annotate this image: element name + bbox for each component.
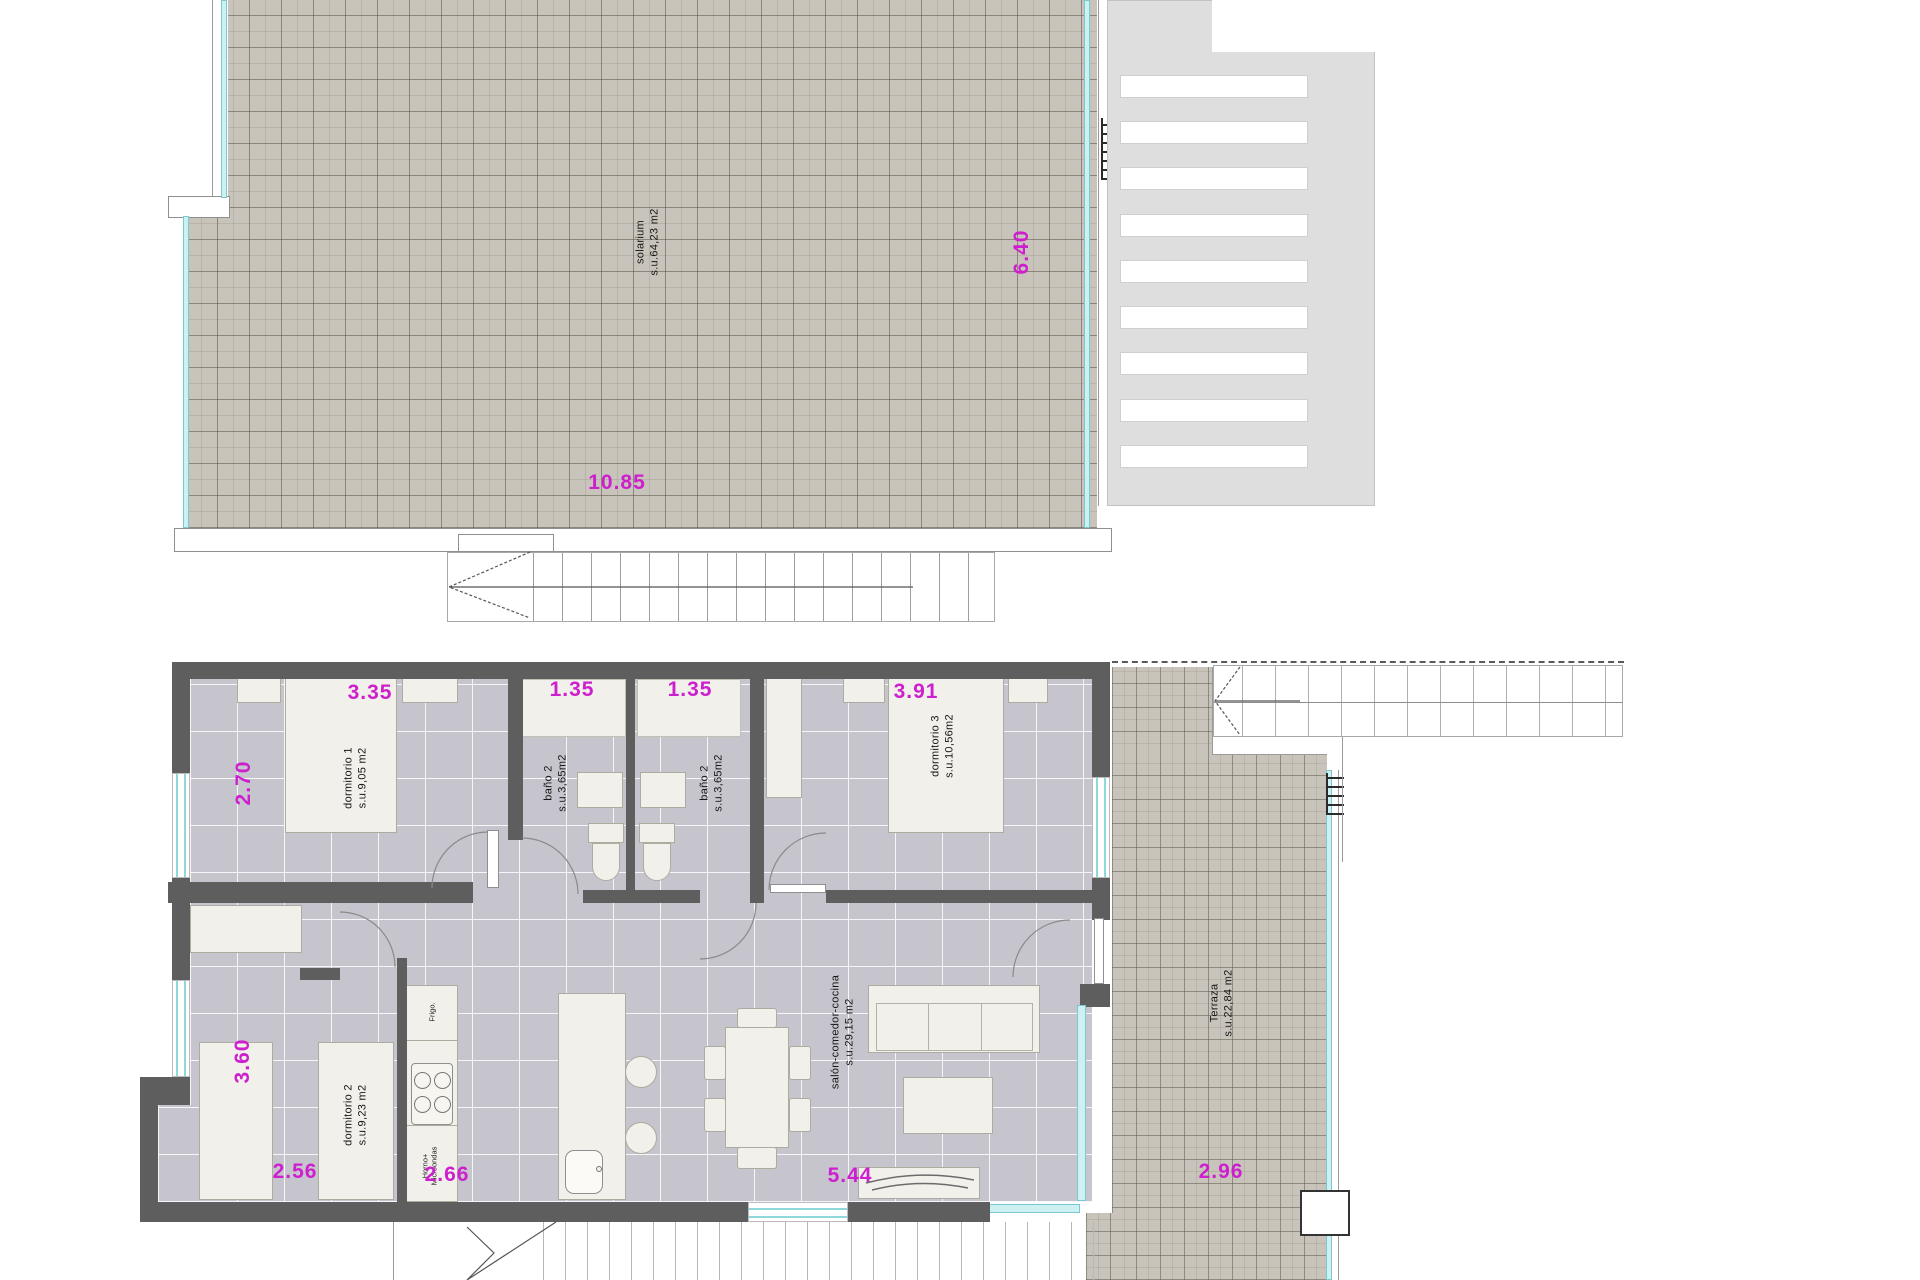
- toilet-bowl-banoB: [643, 843, 671, 881]
- wall-banoB-dorm3: [750, 662, 764, 903]
- room-label-salon: salón-comedor-cocina s.u.29,15 m2: [829, 975, 858, 1089]
- pergola-slat: [1120, 306, 1308, 329]
- upper-stairs-divider: [1214, 702, 1622, 703]
- toilet-tank-banoA: [588, 823, 624, 843]
- room-name: dormitorio 1: [342, 747, 356, 809]
- burner: [434, 1096, 451, 1113]
- terrace-pillar: [1300, 1190, 1350, 1236]
- room-area: s.u.3,65m2: [712, 754, 726, 811]
- wall-right-upper: [1092, 662, 1110, 777]
- room-area: s.u.22,84 m2: [1222, 969, 1236, 1036]
- glass-door-living-right: [1077, 1005, 1086, 1201]
- solarium-stair-landing: [458, 534, 554, 552]
- solarium-bottom-wall: [174, 528, 1112, 552]
- terrace-door-leaf: [1094, 918, 1104, 984]
- vanity-banoB: [640, 772, 686, 808]
- dim-banoA-top: 1.35: [550, 678, 595, 702]
- terrace-notch-edge: [1212, 754, 1327, 755]
- room-name: Terraza: [1208, 969, 1222, 1036]
- upper-stairs-treads: [1242, 666, 1622, 736]
- room-label-dormitorio2: dormitorio 2 s.u.9,23 m2: [342, 1084, 371, 1146]
- vanity-banoA: [577, 772, 623, 808]
- floor-plan-canvas: solarium s.u.64,23 m2 6.40 10.85 dormito…: [0, 0, 1920, 1280]
- entrance-steps: [543, 1222, 1110, 1280]
- dining-chair: [737, 1008, 777, 1028]
- wall-dorm1-banoA: [508, 662, 523, 840]
- room-area: s.u.10,56m2: [943, 714, 957, 778]
- solarium-top-left-notch: [140, 0, 228, 214]
- wall-left-upper: [172, 662, 190, 773]
- solarium-outer-line-right: [1098, 0, 1099, 506]
- burner: [414, 1096, 431, 1113]
- wall-bottom-right: [848, 1202, 990, 1222]
- sofa-divider: [981, 1004, 982, 1051]
- toilet-tank-banoB: [639, 823, 675, 843]
- pergola-slat: [1120, 167, 1308, 190]
- pergola-slat: [1120, 352, 1308, 375]
- kitchen-fridge-label: Frigo.: [427, 1002, 436, 1021]
- solarium-staircase: [447, 552, 995, 622]
- island-sink: [565, 1150, 603, 1194]
- wardrobe-dorm3: [766, 673, 802, 798]
- toilet-bowl-banoA: [592, 843, 620, 881]
- window-dorm3-right: [1092, 777, 1110, 878]
- sink-faucet: [596, 1166, 602, 1172]
- dim-terraza-bottom: 2.96: [1199, 1160, 1244, 1184]
- dim-kitchen-bottom: 2.66: [425, 1163, 470, 1187]
- room-label-banoB: baño 2 s.u.3,65m2: [698, 754, 727, 811]
- solarium-balustrade-left-lower: [183, 216, 189, 528]
- bar-stool: [625, 1122, 657, 1154]
- dim-dorm3-top: 3.91: [894, 680, 939, 704]
- dim-banoB-top: 1.35: [668, 678, 713, 702]
- room-label-terraza: Terraza s.u.22,84 m2: [1208, 969, 1237, 1036]
- sofa-seat-line: [876, 1003, 1033, 1051]
- dim-salon-bottom: 5.44: [828, 1164, 873, 1188]
- wall-banoB-bottom: [635, 890, 700, 903]
- dorm3-door-leaf: [770, 884, 826, 893]
- wall-dorm3-bottom: [826, 890, 1092, 903]
- kitchen-counter-divider: [406, 1125, 458, 1126]
- pergola-slat: [1120, 399, 1308, 422]
- porch-line: [393, 1222, 394, 1280]
- room-area: s.u.9,05 m2: [356, 747, 370, 809]
- dining-table: [725, 1027, 789, 1148]
- dining-chair: [704, 1046, 726, 1080]
- wall-right-mid: [1092, 878, 1110, 920]
- wall-left-corner-block: [140, 1077, 190, 1105]
- burner: [434, 1072, 451, 1089]
- solarium-wall-pier: [168, 196, 230, 218]
- pergola-top-notch: [1212, 0, 1378, 52]
- window-dorm1-left: [172, 773, 190, 878]
- bar-stool: [625, 1056, 657, 1088]
- wall-kitchen-divider: [397, 958, 407, 1202]
- nightstand: [1008, 675, 1048, 703]
- window-dorm2-left: [172, 980, 190, 1077]
- stairs-edge-line: [1342, 737, 1343, 862]
- dwelling-floor-left-extension: [158, 1105, 192, 1202]
- dining-chair: [704, 1098, 726, 1132]
- pergola-slat: [1120, 75, 1308, 98]
- room-name: salón-comedor-cocina: [829, 975, 843, 1089]
- wall-bano-divider: [626, 662, 635, 903]
- wall-dorm2-top-stub: [300, 968, 340, 980]
- solarium-balustrade-left-upper: [221, 0, 227, 198]
- tv-bench: [858, 1167, 980, 1199]
- pergola-slat: [1120, 121, 1308, 144]
- nightstand: [843, 675, 885, 703]
- room-name: solarium: [634, 208, 648, 275]
- dining-chair: [789, 1098, 811, 1132]
- upper-access-stairs: [1213, 665, 1623, 737]
- porch-arrow-chevron: [467, 1227, 494, 1280]
- dim-dorm2-left: 3.60: [231, 1039, 255, 1084]
- glass-door-living-bottom: [988, 1204, 1080, 1213]
- coffee-table: [903, 1077, 993, 1134]
- wall-right-stub: [1080, 984, 1110, 1007]
- boundary-dashed-line: [1112, 661, 1624, 663]
- kitchen-counter-divider: [406, 1040, 458, 1041]
- dining-chair: [789, 1046, 811, 1080]
- pergola-slat: [1120, 260, 1308, 283]
- room-area: s.u.29,15 m2: [843, 975, 857, 1089]
- dining-chair: [737, 1147, 777, 1169]
- room-area: s.u.9,23 m2: [356, 1084, 370, 1146]
- room-area: s.u.64,23 m2: [648, 208, 662, 275]
- pergola-slat: [1120, 214, 1308, 237]
- solarium-outer-line-left: [212, 0, 213, 197]
- hall-closet: [190, 905, 302, 953]
- dim-solarium-width: 10.85: [588, 471, 646, 495]
- dim-dorm1-left: 2.70: [232, 761, 256, 806]
- wall-dorm1-bottom: [168, 882, 473, 903]
- wall-banoA-bottom: [583, 890, 626, 903]
- solarium-stair-treads: [533, 553, 994, 621]
- solarium-balustrade-right: [1084, 0, 1090, 528]
- room-label-banoA: baño 2 s.u.3,65m2: [542, 754, 571, 811]
- room-label-solarium: solarium s.u.64,23 m2: [634, 208, 663, 275]
- room-name: baño 2: [542, 754, 556, 811]
- room-area: s.u.3,65m2: [556, 754, 570, 811]
- room-name: baño 2: [698, 754, 712, 811]
- sofa-divider: [928, 1004, 929, 1051]
- terrace-floor-upper: [1112, 667, 1213, 756]
- dim-dorm2-bottom: 2.56: [273, 1160, 318, 1184]
- room-name: dormitorio 3: [929, 714, 943, 778]
- wall-top: [172, 662, 1110, 679]
- room-label-dormitorio1: dormitorio 1 s.u.9,05 m2: [342, 747, 371, 809]
- dim-solarium-height: 6.40: [1010, 230, 1034, 275]
- pergola-slat: [1120, 445, 1308, 468]
- room-name: dormitorio 2: [342, 1084, 356, 1146]
- dorm1-door-leaf: [487, 830, 499, 888]
- window-bottom: [748, 1202, 848, 1222]
- burner: [414, 1072, 431, 1089]
- wall-bottom-left: [140, 1202, 748, 1222]
- dim-dorm1-top: 3.35: [348, 681, 393, 705]
- room-label-dormitorio3: dormitorio 3 s.u.10,56m2: [929, 714, 958, 778]
